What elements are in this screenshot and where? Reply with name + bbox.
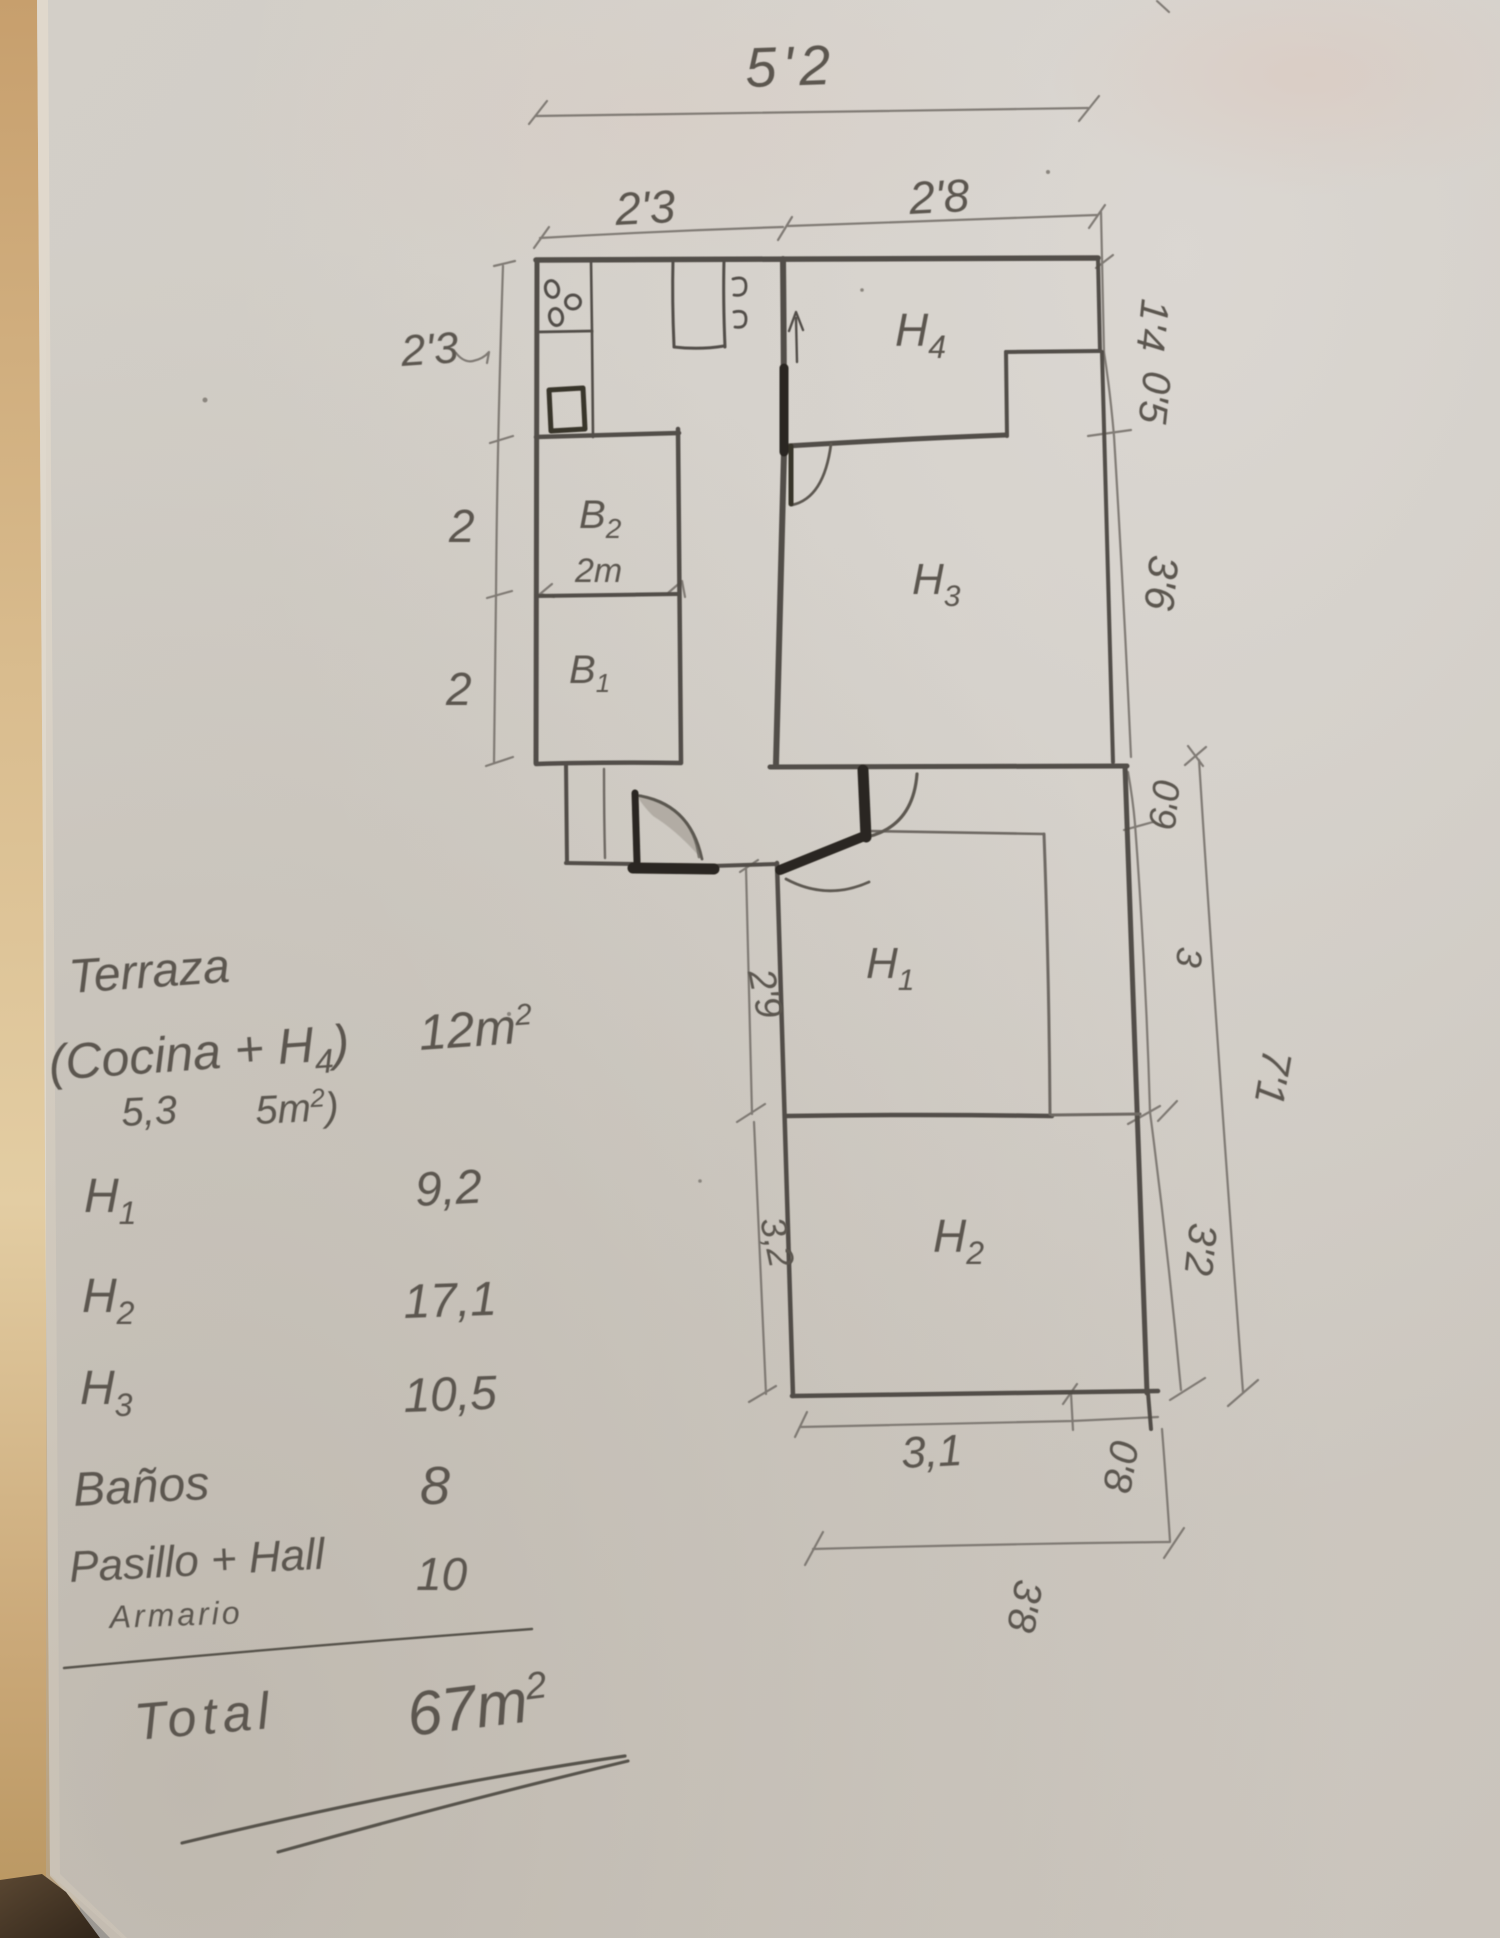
svg-text:5,3: 5,3 bbox=[120, 1088, 178, 1135]
svg-text:0'9: 0'9 bbox=[1140, 777, 1187, 831]
svg-text:12m2: 12m2 bbox=[417, 997, 535, 1061]
svg-text:3,1: 3,1 bbox=[900, 1426, 964, 1478]
svg-text:2: 2 bbox=[445, 663, 472, 715]
svg-text:2m: 2m bbox=[574, 552, 622, 590]
svg-text:Armario: Armario bbox=[107, 1594, 243, 1635]
svg-text:2'3: 2'3 bbox=[398, 323, 460, 376]
svg-text:3'2: 3'2 bbox=[1176, 1221, 1225, 1277]
svg-text:3: 3 bbox=[1168, 945, 1211, 969]
svg-text:Baños: Baños bbox=[72, 1457, 211, 1517]
svg-text:7'1: 7'1 bbox=[1246, 1046, 1302, 1108]
svg-text:1'4: 1'4 bbox=[1128, 297, 1177, 353]
svg-text:0'5: 0'5 bbox=[1130, 369, 1179, 426]
svg-text:2: 2 bbox=[448, 500, 475, 552]
svg-text:3'8: 3'8 bbox=[998, 1576, 1051, 1636]
svg-text:2'8: 2'8 bbox=[907, 169, 971, 224]
svg-text:5m2): 5m2) bbox=[254, 1082, 340, 1133]
svg-text:5'2: 5'2 bbox=[744, 33, 837, 99]
svg-text:Total: Total bbox=[132, 1682, 277, 1752]
svg-text:17,1: 17,1 bbox=[403, 1273, 498, 1329]
svg-text:10: 10 bbox=[416, 1548, 468, 1600]
svg-text:2'3: 2'3 bbox=[613, 180, 677, 235]
svg-text:0'8: 0'8 bbox=[1094, 1436, 1147, 1496]
svg-text:3'6: 3'6 bbox=[1135, 553, 1188, 613]
svg-text:8: 8 bbox=[420, 1456, 450, 1516]
svg-text:10,5: 10,5 bbox=[403, 1367, 499, 1423]
svg-text:Terraza: Terraza bbox=[67, 940, 231, 1004]
svg-text:9,2: 9,2 bbox=[414, 1161, 483, 1217]
